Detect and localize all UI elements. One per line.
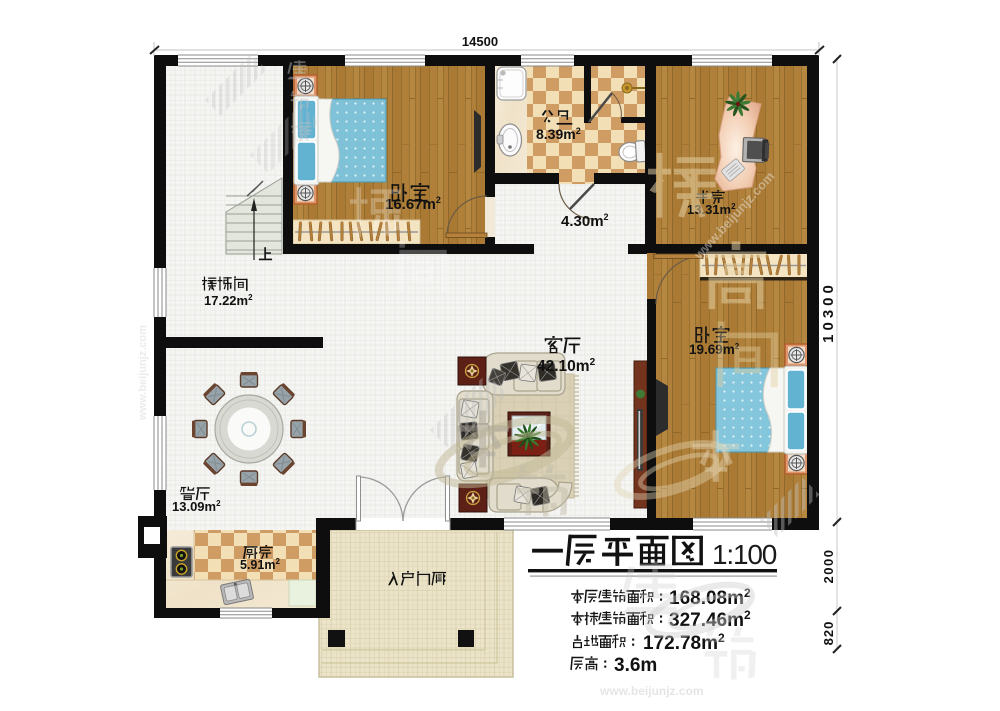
svg-text:17.22m2: 17.22m2 (204, 293, 253, 308)
svg-text:42.10m2: 42.10m2 (537, 357, 596, 375)
svg-text:13.09m2: 13.09m2 (172, 499, 221, 514)
svg-text:3.6m: 3.6m (614, 655, 657, 676)
svg-text:19.69m2: 19.69m2 (689, 342, 740, 357)
svg-text:8.39m2: 8.39m2 (536, 126, 581, 142)
svg-text:www.beijunjz.com: www.beijunjz.com (599, 684, 704, 698)
svg-text:14500: 14500 (462, 34, 498, 49)
svg-text:4.30m2: 4.30m2 (561, 212, 609, 230)
svg-text:10300: 10300 (820, 281, 837, 343)
svg-text:5.91m2: 5.91m2 (240, 557, 280, 572)
svg-text:www.beijunjz.com: www.beijunjz.com (137, 325, 149, 421)
svg-text:1:100: 1:100 (712, 539, 777, 570)
svg-text:2000: 2000 (821, 549, 836, 584)
svg-text:820: 820 (821, 621, 836, 646)
